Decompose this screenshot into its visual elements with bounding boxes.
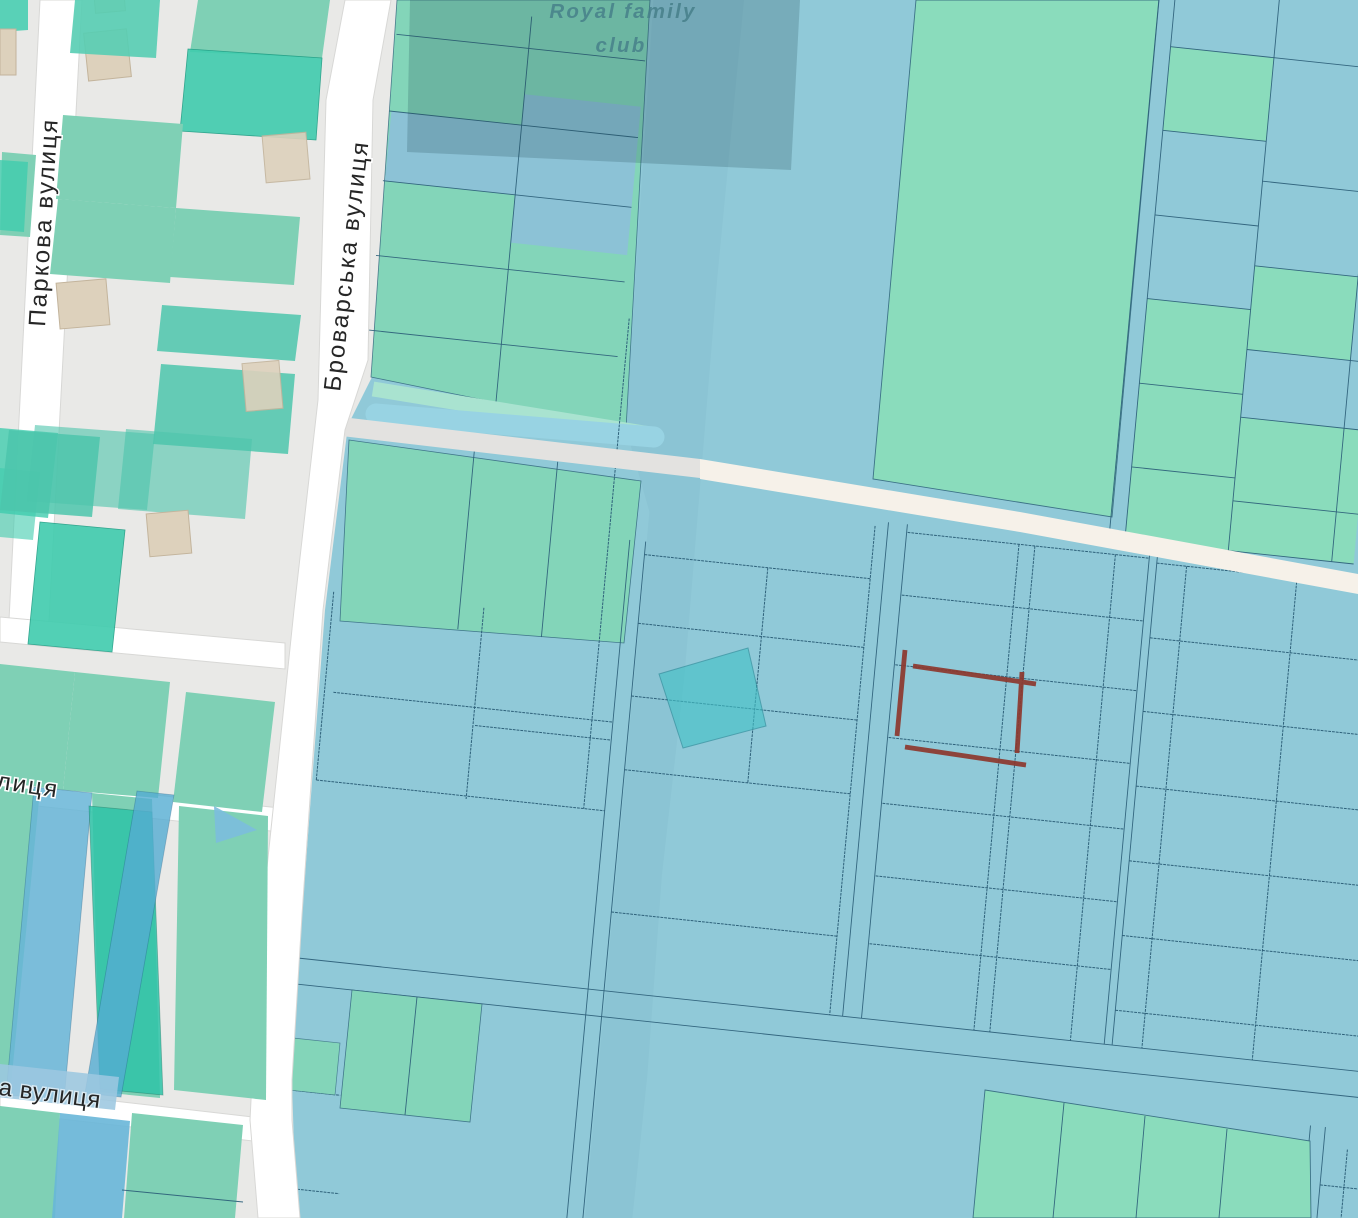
svg-text:Royal family: Royal family [549,0,696,23]
svg-text:club: club [596,34,647,57]
